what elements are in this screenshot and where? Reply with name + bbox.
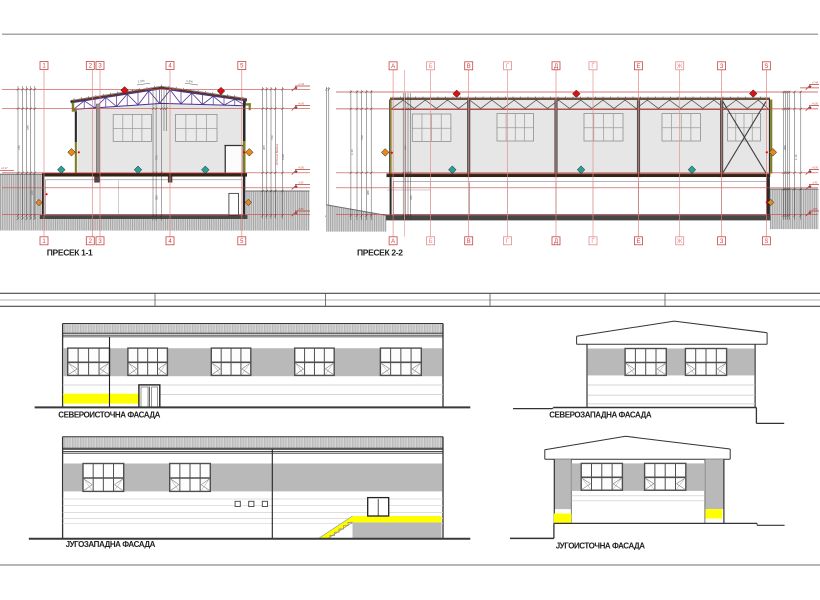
svg-text:120: 120: [30, 190, 34, 195]
svg-text:+0,17: +0,17: [1, 166, 8, 170]
svg-text:-1,42: -1,42: [812, 181, 818, 184]
svg-text:+0,00: +0,00: [812, 166, 819, 169]
svg-text:-3,80: -3,80: [812, 208, 818, 211]
svg-text:305: 305: [262, 145, 266, 150]
svg-text:716: 716: [360, 135, 364, 140]
svg-text:Д: Д: [554, 64, 558, 70]
svg-text:ЈУГОИСТОЧНА ФАСАДА: ЈУГОИСТОЧНА ФАСАДА: [556, 541, 646, 550]
svg-text:СЕВЕРОИСТОЧНА ФАСАДА: СЕВЕРОИСТОЧНА ФАСАДА: [58, 410, 160, 419]
svg-text:СЕВЕРОЗАПАДНА ФАСАДА: СЕВЕРОЗАПАДНА ФАСАДА: [549, 411, 652, 420]
svg-text:305: 305: [783, 145, 787, 150]
svg-text:755: 755: [155, 155, 159, 160]
svg-text:346: 346: [409, 195, 413, 200]
svg-text:+6,00: +6,00: [298, 102, 305, 105]
svg-text:1,10: 1,10: [350, 149, 354, 155]
svg-text:Д: Д: [554, 239, 558, 245]
svg-text:Е: Е: [636, 239, 640, 245]
svg-text:Ж: Ж: [677, 64, 683, 70]
svg-text:А: А: [391, 64, 395, 70]
svg-text:Е: Е: [636, 64, 640, 70]
svg-text:Ѕ: Ѕ: [764, 64, 768, 70]
svg-text:А: А: [391, 239, 395, 245]
svg-text:1,10: 1,10: [794, 154, 798, 160]
svg-text:Б: Б: [429, 64, 433, 70]
svg-text:1130: 1130: [281, 154, 285, 160]
svg-text:375: 375: [26, 125, 30, 130]
svg-text:В: В: [467, 64, 471, 70]
svg-text:В: В: [467, 239, 471, 245]
svg-text:Ж: Ж: [677, 239, 683, 245]
svg-text:-1,42: -1,42: [298, 181, 304, 184]
svg-text:746: 746: [17, 145, 21, 150]
svg-text:388: 388: [155, 195, 159, 200]
svg-text:716: 716: [270, 135, 274, 140]
svg-text:ПРЕСЕК 1-1: ПРЕСЕК 1-1: [47, 248, 93, 258]
svg-text:ЈУГОЗАПАДНА ФАСАДА: ЈУГОЗАПАДНА ФАСАДА: [66, 540, 156, 549]
svg-text:З: З: [720, 239, 724, 245]
svg-text:Ѕ: Ѕ: [764, 239, 768, 245]
svg-text:640: 640: [403, 145, 407, 150]
svg-text:КОТА НА ВЕНЕЦ: КОТА НА ВЕНЕЦ: [275, 144, 279, 165]
svg-text:ПРЕСЕК 2-2: ПРЕСЕК 2-2: [357, 248, 403, 258]
svg-text:+7,44: +7,44: [812, 82, 819, 85]
svg-text:+6,00: +6,00: [812, 103, 819, 106]
svg-text:Б: Б: [429, 239, 433, 245]
svg-text:+0,00: +0,00: [298, 166, 305, 169]
svg-text:З: З: [720, 64, 724, 70]
svg-text:-3,80: -3,80: [298, 208, 304, 211]
svg-text:+7,44: +7,44: [298, 83, 305, 86]
svg-text:388: 388: [366, 190, 370, 195]
